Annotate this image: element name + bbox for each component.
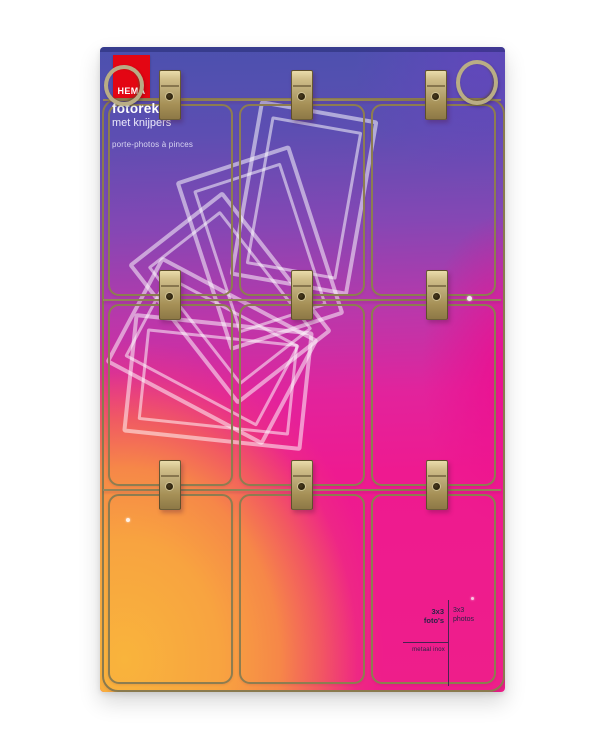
spec-french: 3x3 photos xyxy=(453,607,503,625)
wire-grid-cell xyxy=(371,104,496,296)
spec-french-unit: photos xyxy=(453,616,503,625)
wire-grid-cell xyxy=(371,494,496,684)
hanging-ring-left xyxy=(104,65,144,106)
clothespin-clip xyxy=(291,70,313,120)
wire-grid-cell xyxy=(239,104,364,296)
spec-horizontal-rule xyxy=(403,642,448,643)
product-display-card: HEMA fotorek met knijpers porte-photos à… xyxy=(100,47,505,692)
wire-grid-cell xyxy=(108,494,233,684)
light-speck xyxy=(126,518,130,522)
spec-material: metaal inox xyxy=(400,647,445,653)
wire-grid-cell xyxy=(239,304,364,486)
card-top-edge xyxy=(100,47,505,52)
spec-dutch-unit: foto's xyxy=(388,616,444,625)
spec-dutch: 3x3 foto's xyxy=(388,607,444,625)
wire-grid-cell xyxy=(371,304,496,486)
wire-grid-cell xyxy=(108,304,233,486)
clothespin-clip xyxy=(426,270,448,320)
light-speck xyxy=(467,296,472,301)
clothespin-clip xyxy=(291,270,313,320)
clothespin-clip xyxy=(425,70,447,120)
clothespin-clip xyxy=(159,270,181,320)
clothespin-clip xyxy=(426,460,448,510)
spec-vertical-rule xyxy=(448,600,449,686)
clothespin-clip xyxy=(159,460,181,510)
wire-grid xyxy=(108,104,496,684)
clothespin-clip xyxy=(159,70,181,120)
product-subtitle: met knijpers xyxy=(112,117,193,130)
spec-dutch-size: 3x3 xyxy=(388,607,444,616)
clothespin-clip xyxy=(291,460,313,510)
product-subtitle-french: porte-photos à pinces xyxy=(112,140,193,149)
wire-grid-cell xyxy=(239,494,364,684)
hanging-ring-right xyxy=(456,60,498,105)
spec-french-size: 3x3 xyxy=(453,607,503,616)
light-speck xyxy=(471,597,474,600)
